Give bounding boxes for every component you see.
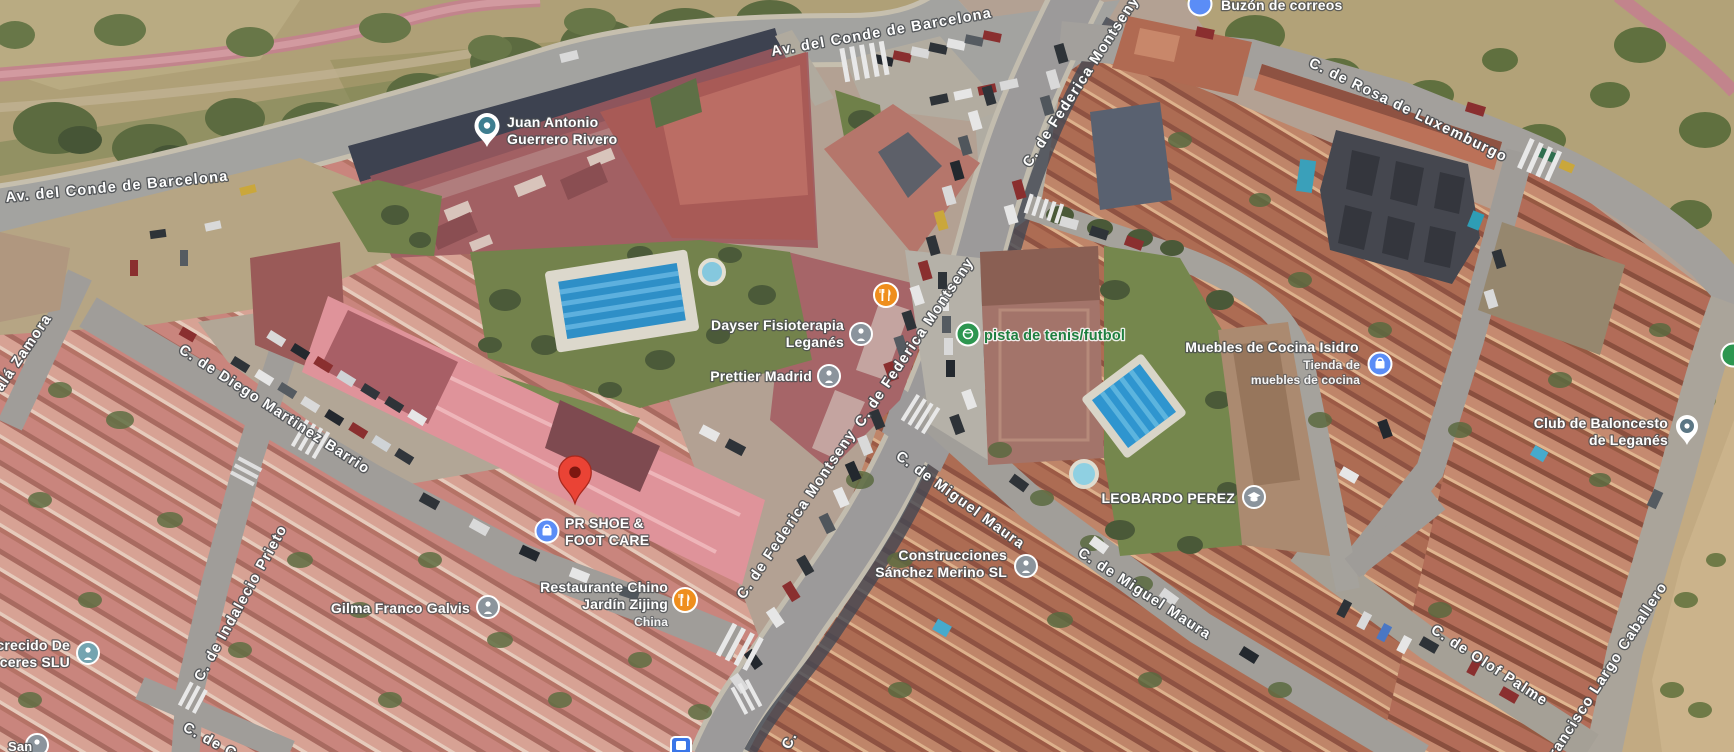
svg-text:de Leganés: de Leganés [1589, 432, 1668, 448]
svg-text:FOOT CARE: FOOT CARE [565, 532, 649, 548]
svg-text:Juan Antonio: Juan Antonio [507, 114, 598, 130]
svg-text:pista de tenis/futbol: pista de tenis/futbol [984, 328, 1125, 344]
svg-text:LEOBARDO PEREZ: LEOBARDO PEREZ [1102, 490, 1236, 506]
svg-text:Gilma Franco Galvis: Gilma Franco Galvis [331, 600, 470, 616]
svg-text:Tienda de: Tienda de [1303, 358, 1360, 372]
svg-text:Sánchez Merino SL: Sánchez Merino SL [875, 564, 1007, 580]
svg-text:Leganés: Leganés [786, 334, 844, 350]
svg-text:Dayser Fisioterapia: Dayser Fisioterapia [711, 317, 844, 333]
svg-text:PR SHOE &: PR SHOE & [565, 515, 644, 531]
svg-text:...ceres SLU: ...ceres SLU [0, 654, 70, 670]
svg-text:muebles de cocina: muebles de cocina [1251, 373, 1360, 387]
svg-text:San: San [8, 739, 32, 752]
svg-text:...crecido De: ...crecido De [0, 637, 70, 653]
svg-text:Guerrero Rivero: Guerrero Rivero [507, 131, 617, 147]
svg-text:Jardín Zijing: Jardín Zijing [582, 596, 668, 612]
svg-text:Construcciones: Construcciones [898, 547, 1007, 563]
svg-text:Muebles de Cocina Isidro: Muebles de Cocina Isidro [1185, 339, 1359, 355]
svg-text:China: China [634, 615, 668, 629]
svg-text:Club de Baloncesto: Club de Baloncesto [1534, 415, 1668, 431]
svg-text:Prettier Madrid: Prettier Madrid [710, 368, 812, 384]
svg-text:Restaurante Chino: Restaurante Chino [540, 579, 668, 595]
svg-text:Buzón de correos: Buzón de correos [1221, 0, 1342, 13]
